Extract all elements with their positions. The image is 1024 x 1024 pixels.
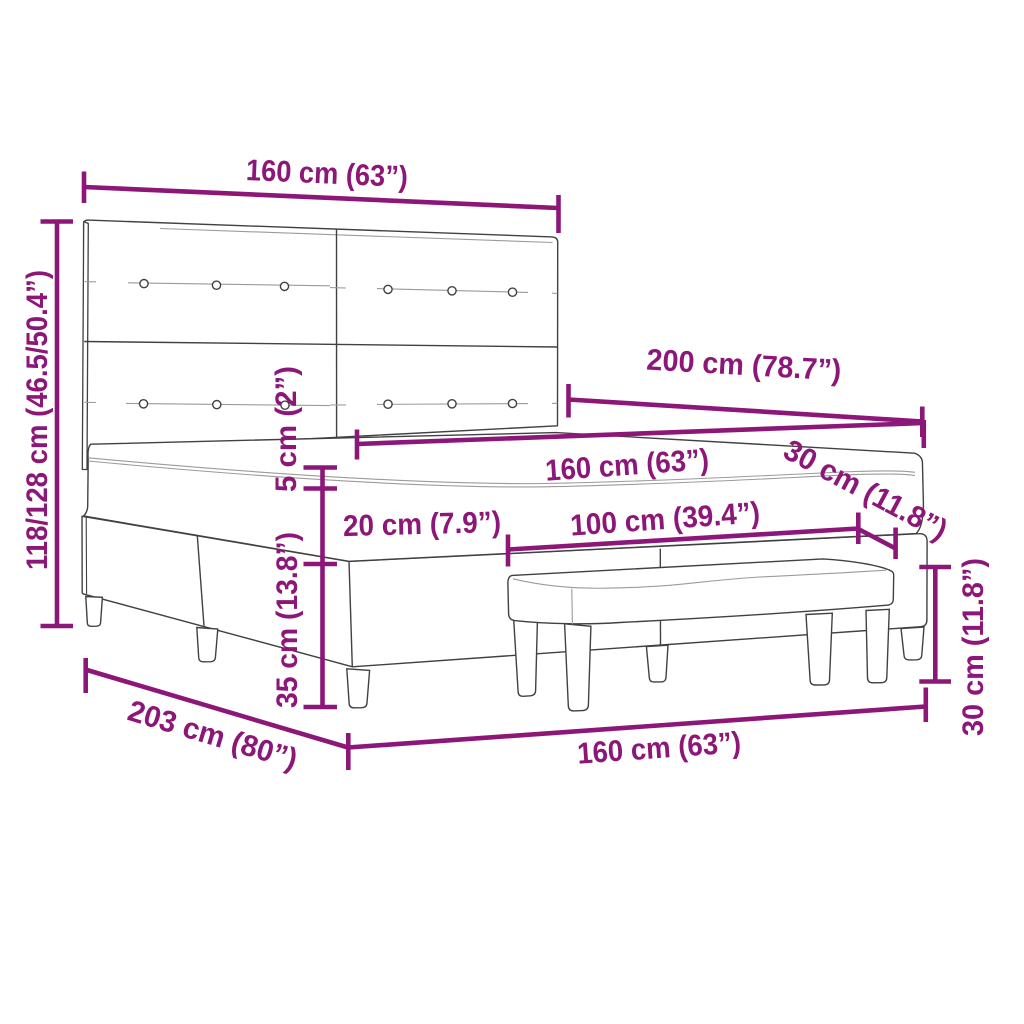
svg-text:30 cm (11.8”): 30 cm (11.8”) bbox=[957, 558, 990, 736]
svg-text:160 cm (63”): 160 cm (63”) bbox=[245, 154, 408, 194]
svg-text:35 cm (13.8”): 35 cm (13.8”) bbox=[271, 532, 304, 708]
svg-text:20 cm (7.9”): 20 cm (7.9”) bbox=[343, 506, 502, 543]
svg-text:5 cm (2”): 5 cm (2”) bbox=[270, 366, 303, 492]
svg-text:118/128 cm (46.5/50.4”): 118/128 cm (46.5/50.4”) bbox=[21, 270, 54, 570]
